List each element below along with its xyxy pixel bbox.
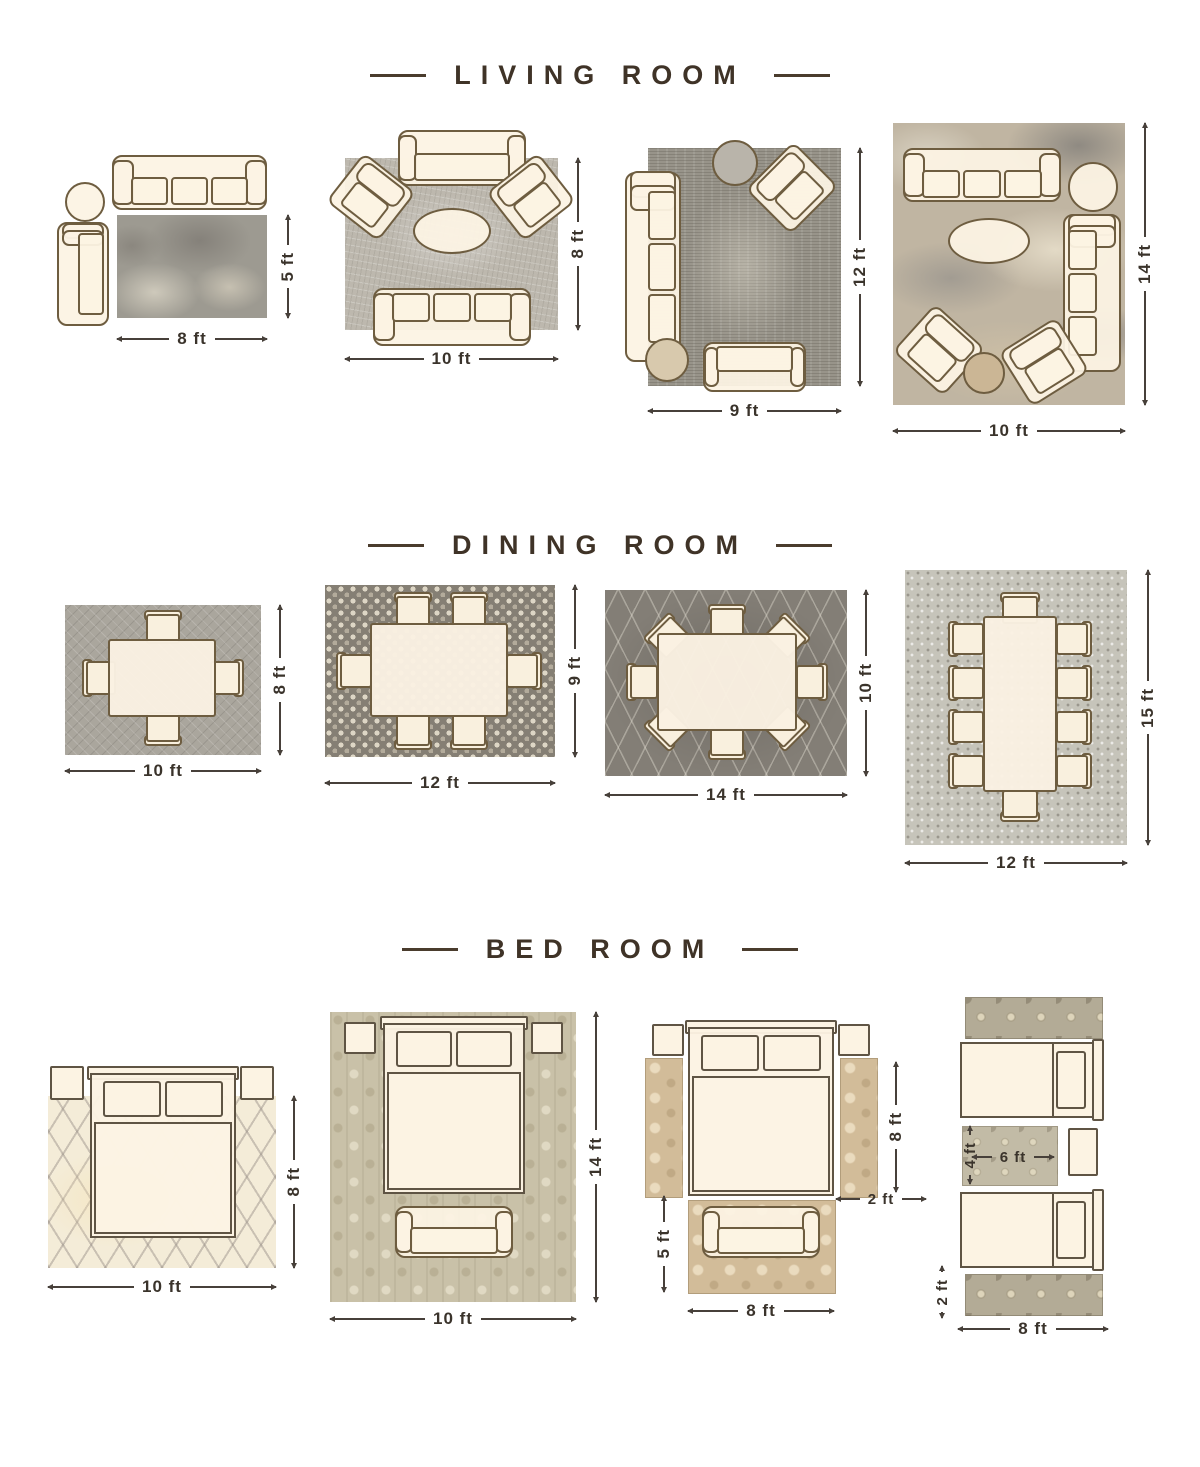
headboard [1092, 1039, 1104, 1121]
nightstand [531, 1022, 563, 1054]
dining-chair [948, 711, 984, 743]
height-dimension: 9 ft [563, 585, 587, 757]
sofa-cushions [392, 293, 512, 323]
coffee-table [948, 218, 1030, 264]
sofa-arm [509, 293, 531, 341]
height-dimension: 8 ft [282, 1096, 306, 1268]
dining-table-oval [657, 633, 797, 731]
pillow [103, 1081, 161, 1117]
runner-length-dimension: 8 ft [958, 1318, 1108, 1340]
runner-rug-8x2 [965, 1274, 1103, 1316]
dining-chair [452, 714, 486, 750]
height-dimension: 5 ft [276, 215, 300, 318]
sofa-cushions [716, 346, 793, 371]
pillow [701, 1035, 759, 1071]
side-table [712, 140, 758, 186]
width-dimension: 10 ft [893, 420, 1125, 442]
sofa-arm [1039, 153, 1061, 197]
twin-bed [960, 1192, 1104, 1268]
pillow [165, 1081, 223, 1117]
title-dash [742, 948, 798, 951]
duvet [94, 1122, 232, 1234]
pillow [1056, 1051, 1086, 1109]
headboard [1092, 1189, 1104, 1271]
round-chair [1068, 162, 1118, 212]
runner-height-dimension: 8 ft [884, 1062, 908, 1192]
loveseat [703, 342, 806, 392]
width-dimension: 8 ft [117, 328, 267, 350]
bench [395, 1206, 513, 1258]
duvet-line [1052, 1192, 1054, 1268]
sofa-arm [245, 160, 267, 205]
nightstand [50, 1066, 84, 1100]
dining-chair [1056, 711, 1092, 743]
dining-chair [948, 755, 984, 787]
title-dash [368, 544, 424, 547]
runner-width-dimension: 2 ft [930, 1266, 954, 1318]
foot-rug-height-dimension: 5 ft [652, 1196, 676, 1292]
dining-chair [948, 623, 984, 655]
center-rug-width-dimension: 6 ft [972, 1146, 1054, 1168]
duvet [692, 1076, 830, 1192]
twin-bed [960, 1042, 1104, 1118]
width-dimension: 9 ft [648, 400, 841, 422]
width-dimension: 10 ft [345, 348, 558, 370]
sofa-cushions [131, 177, 249, 205]
dining-chair [1056, 667, 1092, 699]
sofa-cushions [717, 1227, 806, 1253]
height-dimension: 14 ft [584, 1012, 608, 1302]
duvet [387, 1072, 521, 1190]
dining-table [370, 623, 508, 717]
sofa [625, 172, 681, 362]
sofa-cushions [414, 153, 511, 182]
width-dimension: 10 ft [330, 1308, 576, 1330]
coffee-table [413, 208, 491, 254]
dining-chair [336, 654, 372, 688]
dining-chair [710, 604, 744, 636]
section-title-bed-room: BED ROOM [0, 934, 1200, 965]
foot-rug-width-dimension: 8 ft [688, 1300, 834, 1322]
ottoman [645, 338, 689, 382]
section-title-text: BED ROOM [486, 934, 715, 965]
runner-rug-2x8 [840, 1058, 878, 1198]
pillow [763, 1035, 821, 1071]
width-dimension: 10 ft [65, 760, 261, 782]
dining-chair [396, 714, 430, 750]
ottoman [963, 352, 1005, 394]
bed [90, 1066, 236, 1238]
sofa [112, 155, 267, 210]
dining-chair [626, 665, 658, 699]
sofa-cushions [410, 1227, 499, 1253]
bench [702, 1206, 820, 1258]
dining-chair [146, 712, 180, 746]
nightstand [652, 1024, 684, 1056]
nightstand [344, 1022, 376, 1054]
chaise-lounge [57, 222, 109, 326]
sofa-cushions [648, 191, 676, 344]
title-dash [402, 948, 458, 951]
sofa-cushions [1068, 230, 1097, 356]
rug-8x5 [117, 215, 267, 318]
height-dimension: 15 ft [1136, 570, 1160, 845]
sofa-cushions [78, 233, 104, 315]
runner-width-dimension: 2 ft [836, 1188, 926, 1210]
dining-table [983, 616, 1057, 792]
height-dimension: 8 ft [268, 605, 292, 755]
title-dash [370, 74, 426, 77]
title-dash [774, 74, 830, 77]
height-dimension: 14 ft [1133, 123, 1157, 405]
section-title-dining-room: DINING ROOM [0, 530, 1200, 561]
dining-chair [506, 654, 542, 688]
section-title-text: DINING ROOM [452, 530, 748, 561]
rug-size-guide: LIVING ROOM 8 ft 5 ft [0, 0, 1200, 1467]
section-title-living-room: LIVING ROOM [0, 60, 1200, 91]
dining-chair [710, 728, 744, 760]
nightstand [838, 1024, 870, 1056]
width-dimension: 14 ft [605, 784, 847, 806]
width-dimension: 12 ft [325, 772, 555, 794]
pillow [396, 1031, 453, 1067]
width-dimension: 10 ft [48, 1276, 276, 1298]
dining-chair [1002, 790, 1038, 822]
height-dimension: 10 ft [854, 590, 878, 776]
height-dimension: 8 ft [566, 158, 590, 330]
dining-chair [1056, 755, 1092, 787]
dining-chair [1056, 623, 1092, 655]
sofa [903, 148, 1061, 202]
dining-chair [796, 665, 828, 699]
height-dimension: 12 ft [848, 148, 872, 386]
section-title-text: LIVING ROOM [454, 60, 746, 91]
sofa [373, 288, 531, 346]
duvet-line [1052, 1042, 1054, 1118]
nightstand [240, 1066, 274, 1100]
nightstand [1068, 1128, 1098, 1176]
title-dash [776, 544, 832, 547]
dining-table [108, 639, 216, 717]
bed [688, 1020, 834, 1196]
width-dimension: 12 ft [905, 852, 1127, 874]
pillow [456, 1031, 513, 1067]
sofa-cushions [922, 170, 1042, 198]
runner-rug-2x8 [645, 1058, 683, 1198]
dining-chair [948, 667, 984, 699]
runner-rug-8x2 [965, 997, 1103, 1039]
side-table [65, 182, 105, 222]
pillow [1056, 1201, 1086, 1259]
bed [383, 1016, 525, 1194]
